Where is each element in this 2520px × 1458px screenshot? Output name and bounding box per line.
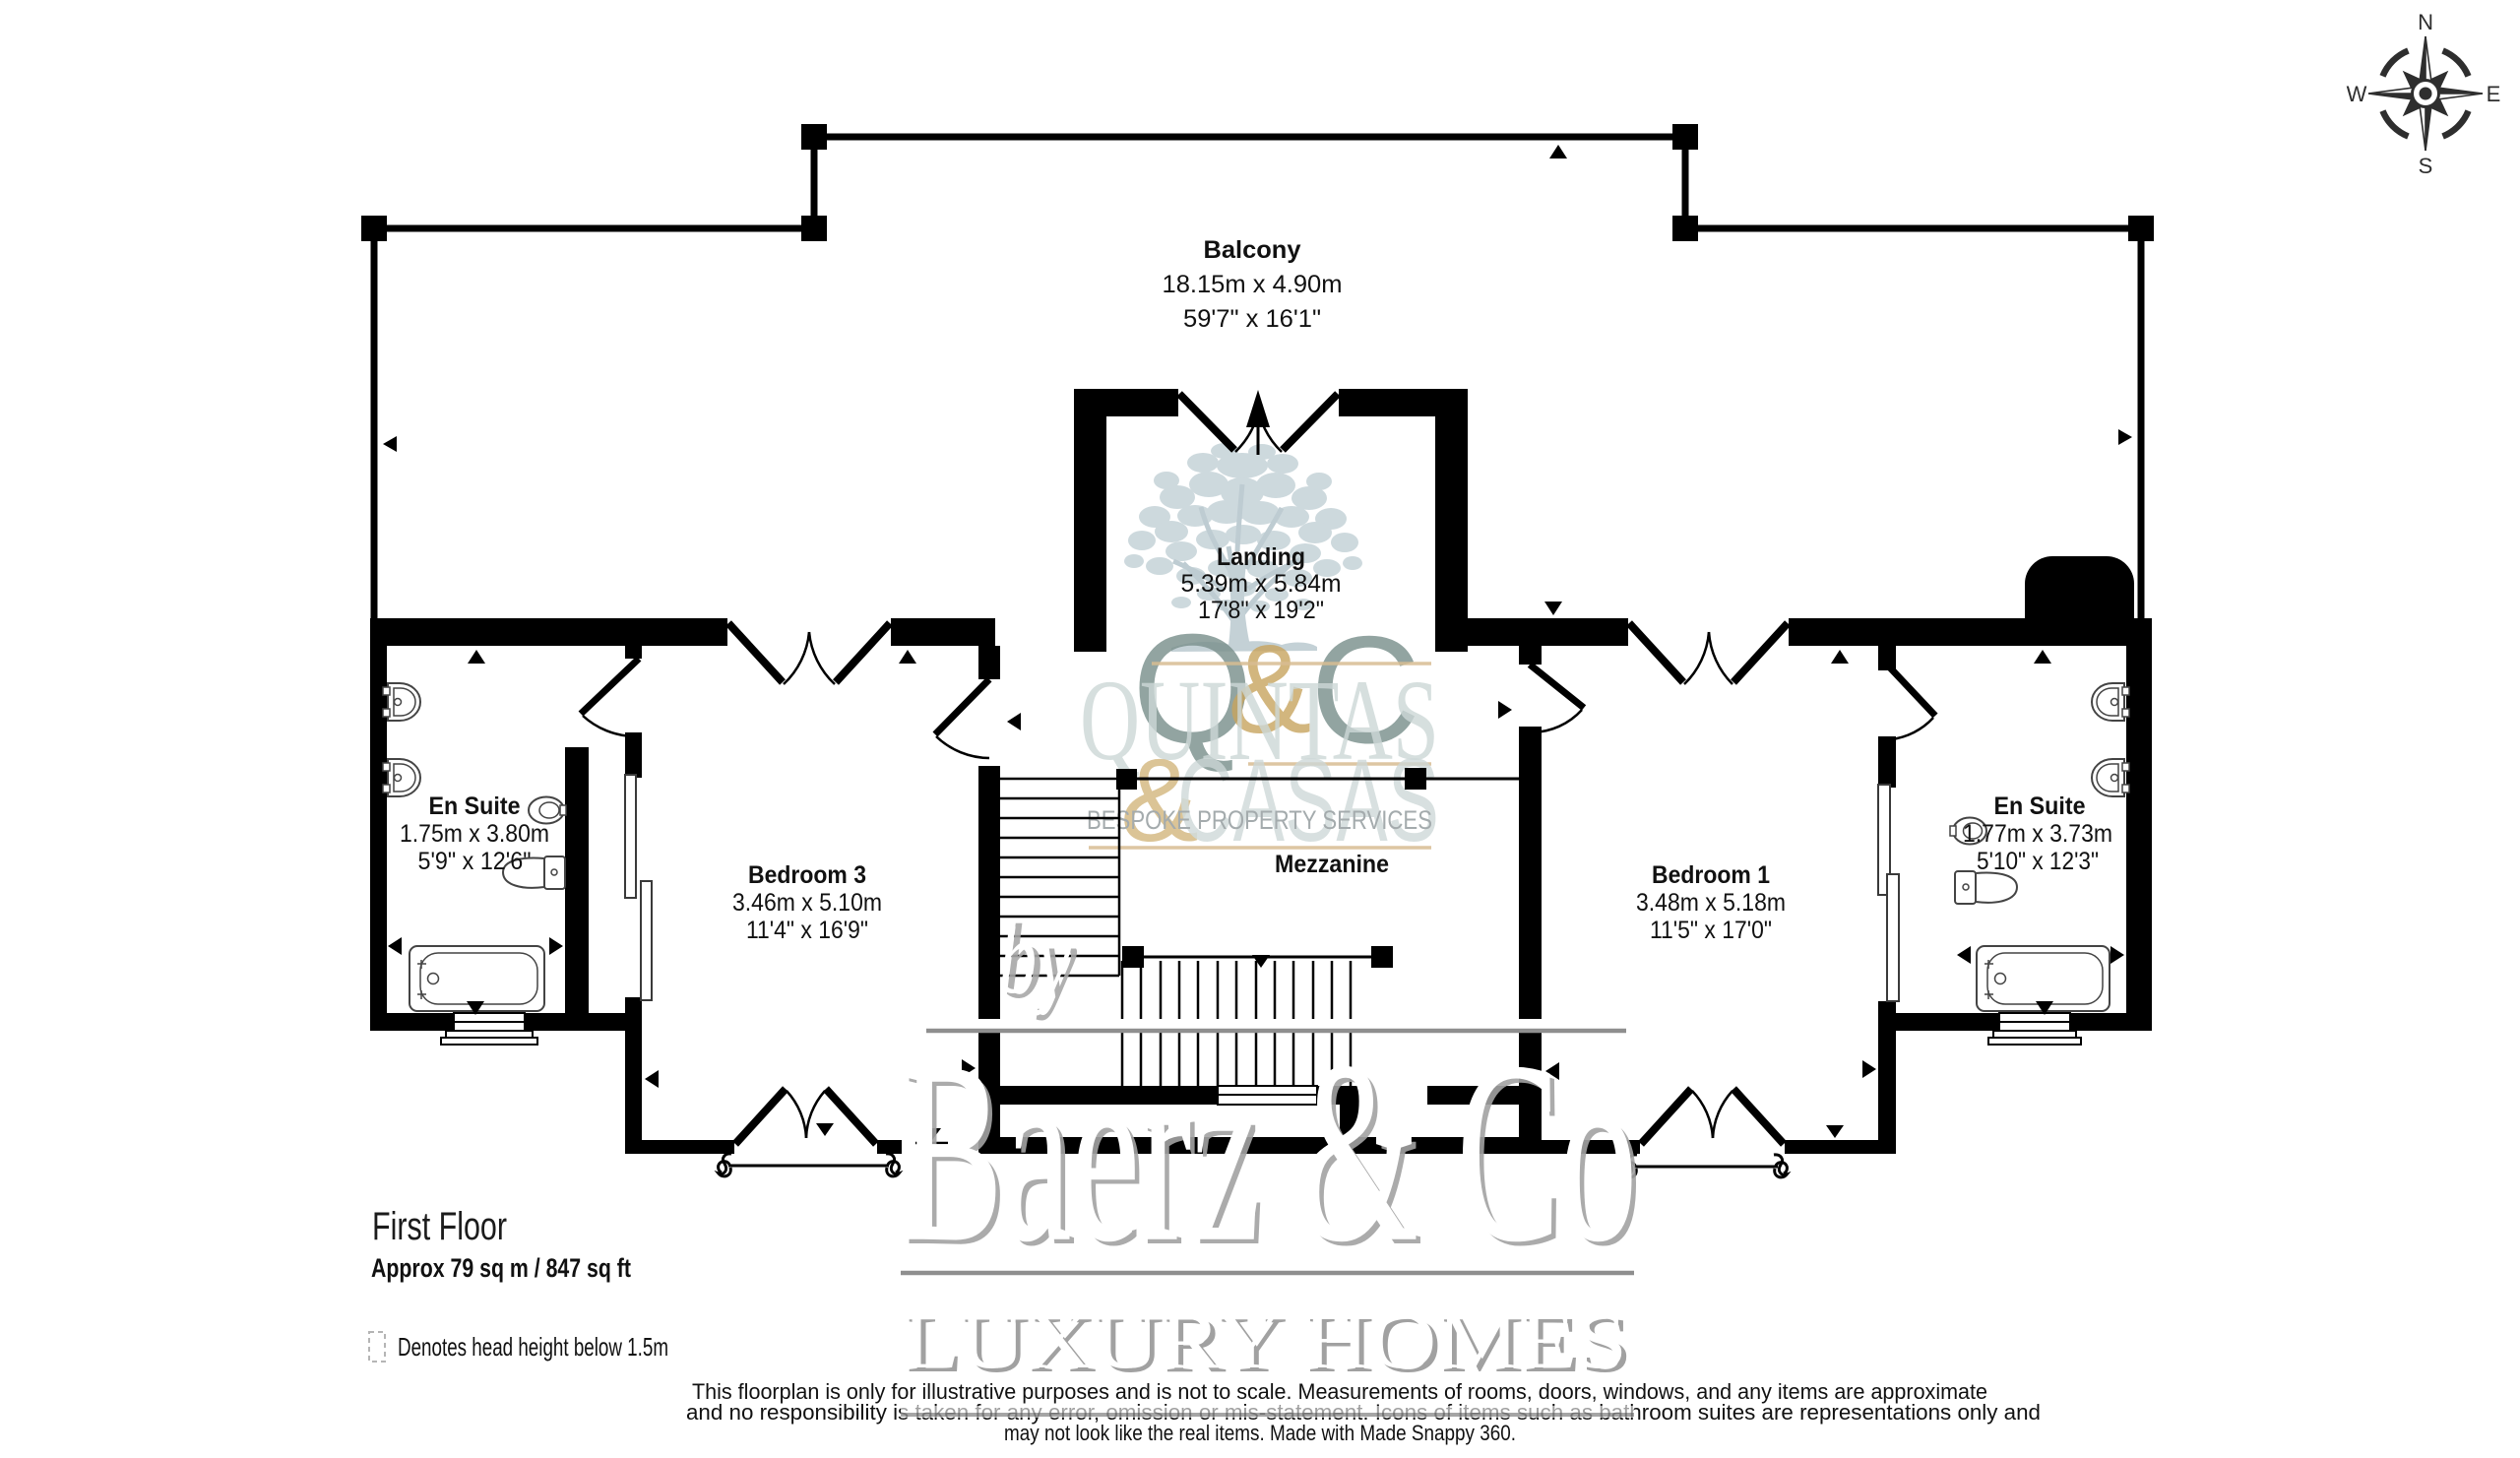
svg-text:5'10" x 12'3": 5'10" x 12'3" xyxy=(1977,848,2099,875)
svg-text:59'7" x 16'1": 59'7" x 16'1" xyxy=(1183,305,1321,333)
svg-text:Bedroom 3: Bedroom 3 xyxy=(748,861,866,889)
svg-text:5'9" x 12'6": 5'9" x 12'6" xyxy=(418,848,532,875)
svg-text:Balcony: Balcony xyxy=(1204,236,1301,264)
svg-text:1.77m x 3.73m: 1.77m x 3.73m xyxy=(1963,820,2112,848)
svg-text:by: by xyxy=(998,899,1071,1016)
svg-text:Denotes head height below 1.5m: Denotes head height below 1.5m xyxy=(398,1332,668,1362)
svg-text:3.46m x 5.10m: 3.46m x 5.10m xyxy=(732,889,882,917)
svg-text:may not look like the real ite: may not look like the real items. Made w… xyxy=(1004,1421,1516,1445)
svg-text:LUXURY HOMES: LUXURY HOMES xyxy=(902,1299,1627,1385)
svg-text:Landing: Landing xyxy=(1217,543,1305,571)
svg-text:First Floor: First Floor xyxy=(372,1205,507,1248)
svg-text:S: S xyxy=(2419,154,2433,178)
svg-text:Baerz & Co: Baerz & Co xyxy=(900,1009,1637,1295)
svg-text:1.75m x 3.80m: 1.75m x 3.80m xyxy=(400,820,549,848)
svg-text:Mezzanine: Mezzanine xyxy=(1275,851,1389,878)
svg-text:BESPOKE PROPERTY SERVICES: BESPOKE PROPERTY SERVICES xyxy=(1087,805,1432,835)
svg-text:Approx 79 sq m / 847 sq ft: Approx 79 sq m / 847 sq ft xyxy=(371,1253,631,1283)
svg-text:N: N xyxy=(2418,10,2433,34)
svg-text:W: W xyxy=(2347,82,2367,106)
svg-text:3.48m x 5.18m: 3.48m x 5.18m xyxy=(1636,889,1786,917)
svg-text:18.15m x 4.90m: 18.15m x 4.90m xyxy=(1163,271,1343,298)
svg-text:CASAS: CASAS xyxy=(1177,734,1439,866)
svg-text:17'8" x 19'2": 17'8" x 19'2" xyxy=(1198,597,1324,624)
svg-text:E: E xyxy=(2487,82,2501,106)
svg-text:En Suite: En Suite xyxy=(1994,792,2086,820)
svg-text:Bedroom 1: Bedroom 1 xyxy=(1652,861,1770,889)
svg-text:11'4" x 16'9": 11'4" x 16'9" xyxy=(746,917,868,944)
svg-text:En Suite: En Suite xyxy=(429,792,521,820)
svg-text:11'5" x 17'0": 11'5" x 17'0" xyxy=(1650,917,1772,944)
svg-text:5.39m x 5.84m: 5.39m x 5.84m xyxy=(1181,570,1342,598)
